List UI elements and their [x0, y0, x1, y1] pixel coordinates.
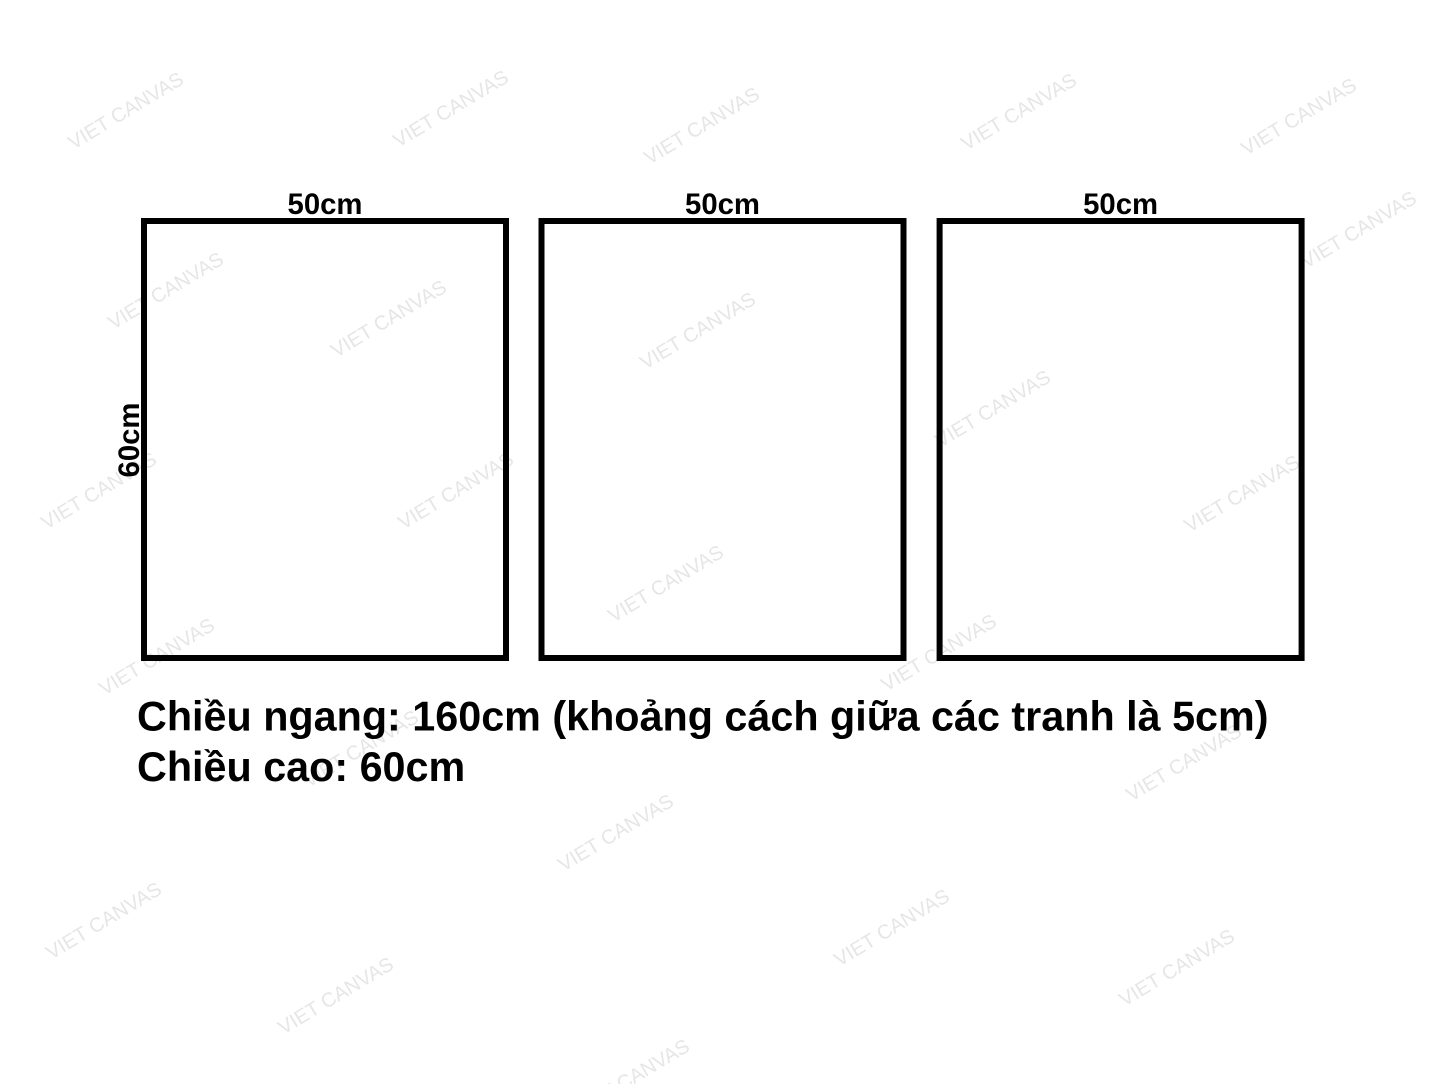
- svg-text:Chiều ngang: 160cm (khoảng các: Chiều ngang: 160cm (khoảng cách giữa các…: [137, 694, 1268, 740]
- svg-text:50cm: 50cm: [1083, 188, 1158, 221]
- svg-text:60cm: 60cm: [113, 403, 146, 478]
- svg-text:50cm: 50cm: [685, 188, 760, 221]
- svg-text:Chiều cao: 60cm: Chiều cao: 60cm: [137, 744, 465, 790]
- svg-text:50cm: 50cm: [288, 188, 363, 221]
